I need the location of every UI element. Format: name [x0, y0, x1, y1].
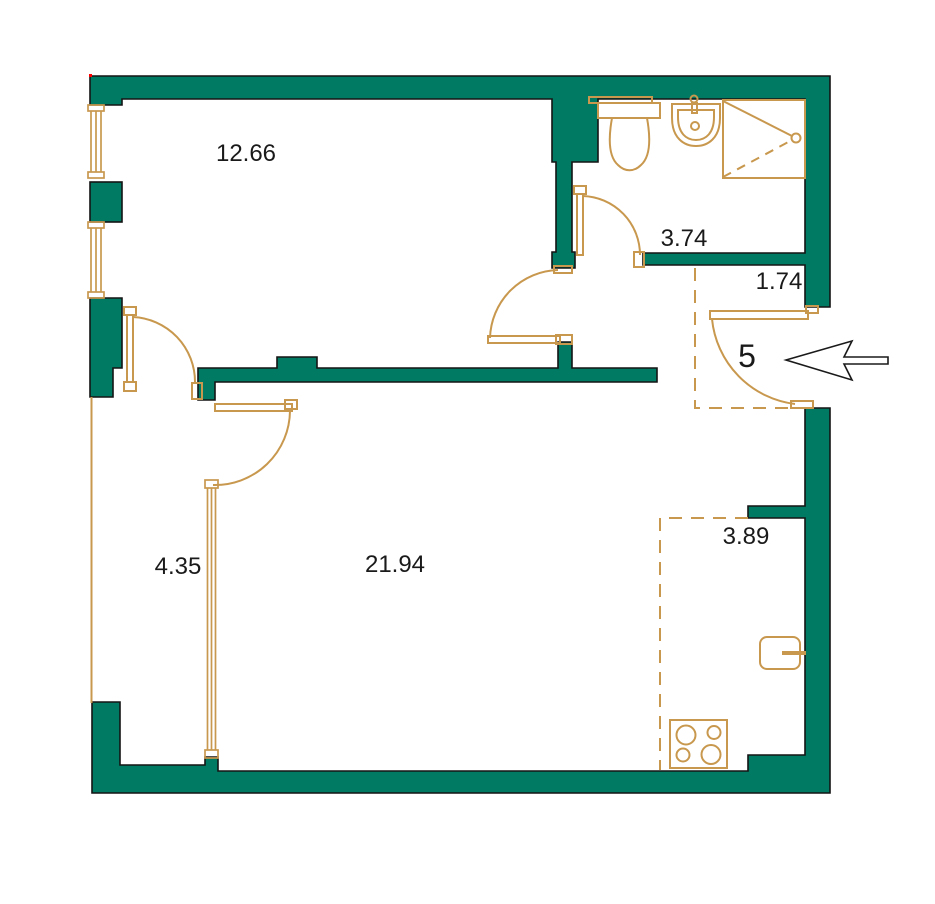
- shower-head: [792, 134, 801, 143]
- label-hallway-area: 1.74: [756, 268, 803, 295]
- label-bedroom-area: 12.66: [216, 140, 276, 167]
- door-bedroom: [488, 266, 572, 344]
- partition-4-35: [205, 480, 218, 758]
- wall-left-pier-1: [90, 182, 122, 222]
- wall-central: [198, 342, 657, 400]
- floor-plan-drawing: 12.66 3.74 1.74 4.35 21.94 3.89 5: [0, 0, 935, 904]
- kitchen-fixtures: [670, 637, 806, 768]
- bathroom-fixtures: [589, 96, 805, 179]
- label-kitchen-area: 3.89: [723, 523, 770, 550]
- label-bathroom-area: 3.74: [661, 225, 708, 252]
- sink: [672, 96, 720, 147]
- label-living-room-area: 21.94: [365, 551, 425, 578]
- door-storage: [124, 307, 195, 391]
- window-lower: [88, 222, 104, 298]
- label-storage-area: 4.35: [155, 553, 202, 580]
- toilet: [589, 97, 660, 170]
- stove: [670, 720, 727, 768]
- kitchen-zone-boundary: [660, 518, 748, 770]
- corner-artifact: [89, 74, 92, 77]
- floor-plan: 12.66 3.74 1.74 4.35 21.94 3.89 5: [0, 0, 935, 904]
- shower: [723, 100, 805, 178]
- sink-drain: [691, 122, 699, 130]
- door-bathroom: [574, 186, 644, 267]
- walls: [89, 74, 830, 793]
- zone-boundaries: [660, 268, 792, 770]
- doors: [124, 186, 818, 485]
- room-labels: 12.66 3.74 1.74 4.35 21.94 3.89 5: [155, 140, 803, 580]
- window-upper: [88, 105, 104, 178]
- wall-left-pier-2: [90, 298, 122, 397]
- unit-number: 5: [738, 338, 756, 374]
- kitchen-sink: [760, 637, 806, 669]
- entrance-arrow-icon: [786, 341, 888, 380]
